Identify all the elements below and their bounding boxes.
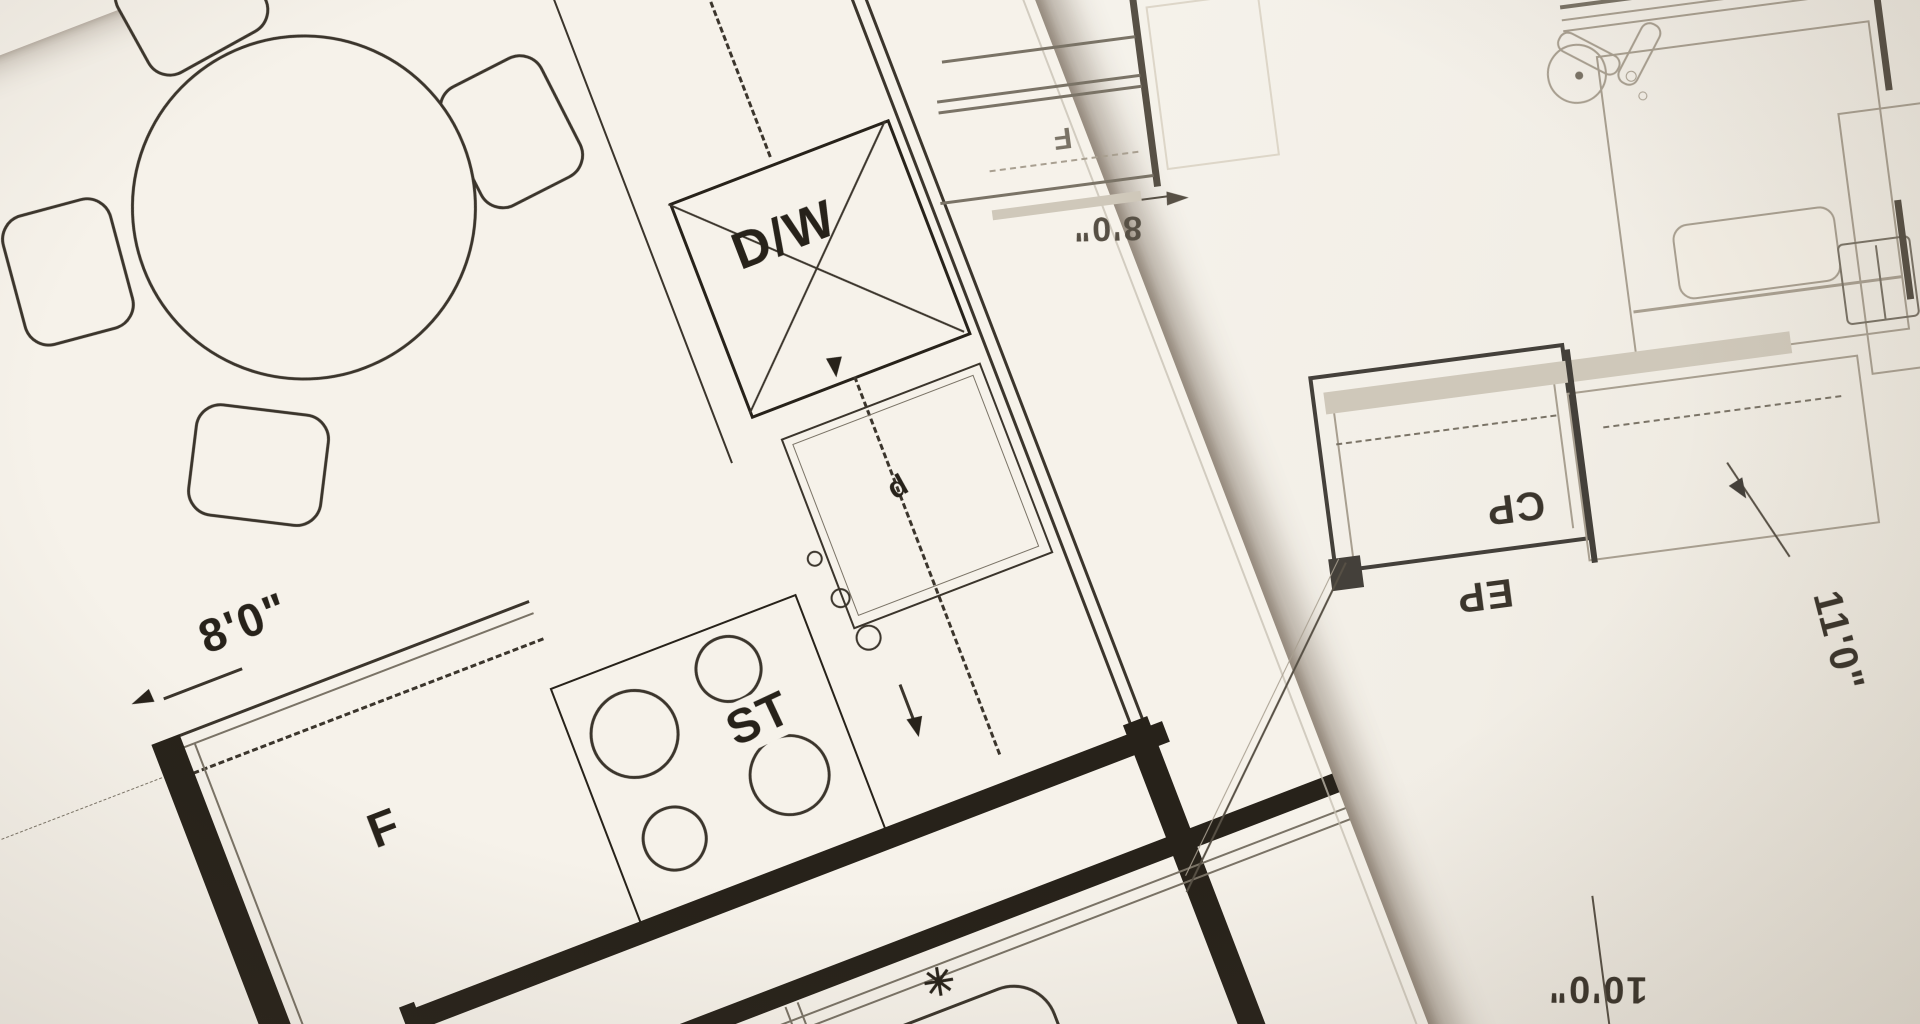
ceiling-fan-icon (1548, 44, 1611, 107)
dimension-label: 8'0" (1072, 211, 1143, 247)
cabinet-dash-line (184, 637, 544, 777)
dimension-label: 11'0" (1806, 587, 1871, 697)
wall-line (942, 35, 1136, 63)
wall-thick (151, 734, 380, 1024)
dimension-line (163, 667, 242, 699)
dimension-label: 10'0" (1547, 970, 1648, 1009)
dining-chair (0, 191, 141, 352)
door-leaf-line (1186, 562, 1347, 892)
dining-chair (184, 400, 333, 530)
closet-label: CP (1483, 484, 1547, 531)
refrigerator-label: F (1050, 121, 1074, 153)
extension-line (0, 774, 171, 881)
entry-label: EP (1453, 572, 1515, 619)
closet-second (1566, 355, 1880, 562)
wall-line (1560, 0, 1878, 9)
refrigerator-label: F (361, 801, 407, 857)
blueprint-photo: D/W d ST 8'0" (0, 0, 1920, 1024)
dimension-arrow-icon (1166, 191, 1189, 206)
dimension-arrow-icon (129, 689, 155, 711)
bleedthrough-rect (1145, 0, 1280, 170)
right-blueprint-plan: CP EP 11'0" 10'0" 8'0" F (639, 0, 1920, 1024)
door-leaf-line (1185, 558, 1339, 875)
dimension-label: 8'0" (193, 585, 295, 661)
